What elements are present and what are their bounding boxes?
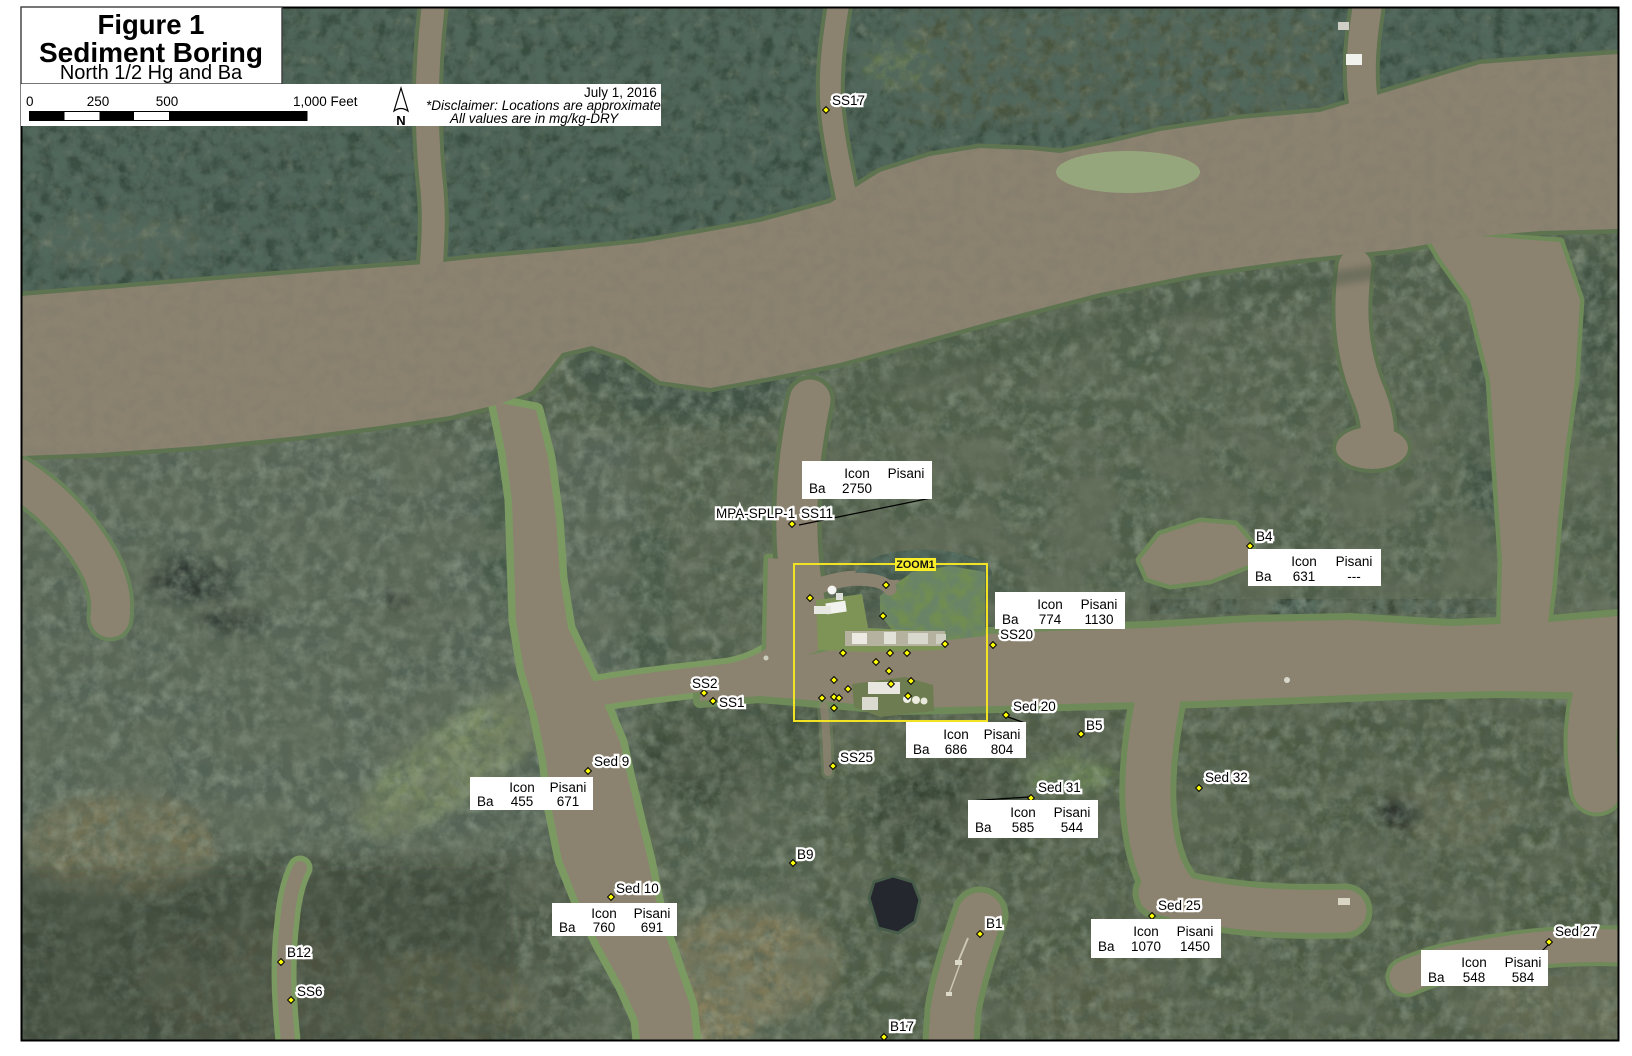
svg-text:1450: 1450 [1180,939,1210,954]
svg-text:250: 250 [87,94,110,109]
svg-text:Sed 25: Sed 25 [1158,898,1201,913]
svg-text:Ba: Ba [559,920,576,935]
svg-text:1130: 1130 [1084,612,1113,627]
svg-text:Sed 31: Sed 31 [1038,780,1081,795]
svg-text:Pisani: Pisani [550,780,587,795]
svg-text:B1: B1 [986,916,1003,931]
svg-text:Pisani: Pisani [1177,924,1214,939]
svg-text:Icon: Icon [1461,955,1487,970]
svg-text:Icon: Icon [1010,805,1036,820]
svg-text:SS1: SS1 [719,695,745,710]
svg-text:Icon: Icon [591,906,617,921]
svg-text:B5: B5 [1086,718,1103,733]
svg-text:Icon: Icon [1037,597,1063,612]
svg-text:Icon: Icon [943,727,969,742]
svg-text:686: 686 [945,742,968,757]
svg-text:MPA-SPLP-1: MPA-SPLP-1 [716,506,795,521]
svg-text:2750: 2750 [842,481,872,496]
svg-text:SS20: SS20 [1000,627,1033,642]
svg-text:Icon: Icon [844,466,870,481]
svg-text:Ba: Ba [1428,970,1445,985]
svg-text:SS2: SS2 [692,676,718,691]
svg-text:SS11: SS11 [801,506,833,521]
svg-text:Sed 32: Sed 32 [1205,770,1248,785]
svg-text:SS6: SS6 [297,984,323,999]
svg-text:Icon: Icon [1133,924,1159,939]
svg-text:Ba: Ba [975,820,992,835]
svg-text:Icon: Icon [509,780,535,795]
svg-text:631: 631 [1293,569,1316,584]
svg-text:North 1/2 Hg and Ba: North 1/2 Hg and Ba [60,62,243,84]
svg-text:SS25: SS25 [840,750,873,765]
svg-text:671: 671 [557,794,580,809]
svg-text:Pisani: Pisani [1054,805,1091,820]
svg-text:544: 544 [1061,820,1084,835]
svg-text:SS17: SS17 [832,93,865,108]
svg-text:Pisani: Pisani [1505,955,1542,970]
svg-text:---: --- [1347,569,1361,584]
svg-text:Pisani: Pisani [634,906,671,921]
svg-text:Ba: Ba [913,742,930,757]
svg-text:Ba: Ba [809,481,826,496]
svg-text:B9: B9 [797,847,814,862]
svg-text:691: 691 [641,920,664,935]
svg-text:804: 804 [991,742,1014,757]
svg-text:Pisani: Pisani [1336,554,1373,569]
svg-text:Sed 20: Sed 20 [1013,699,1056,714]
svg-text:Pisani: Pisani [1081,597,1118,612]
svg-text:1,000 Feet: 1,000 Feet [293,94,358,109]
svg-text:Sed 27: Sed 27 [1555,924,1598,939]
svg-text:585: 585 [1012,820,1035,835]
svg-text:774: 774 [1039,612,1062,627]
svg-text:760: 760 [593,920,616,935]
svg-text:Pisani: Pisani [984,727,1021,742]
svg-text:Pisani: Pisani [888,466,925,481]
svg-text:Sed 9: Sed 9 [594,754,629,769]
svg-text:All values are in mg/kg-DRY: All values are in mg/kg-DRY [449,111,619,126]
svg-text:Ba: Ba [1002,612,1019,627]
svg-text:548: 548 [1463,970,1486,985]
svg-text:0: 0 [26,94,34,109]
svg-text:B17: B17 [890,1019,914,1034]
svg-text:Sed 10: Sed 10 [616,881,659,896]
svg-text:Ba: Ba [1098,939,1115,954]
svg-text:1070: 1070 [1131,939,1161,954]
svg-text:B4: B4 [1256,529,1273,544]
svg-text:Icon: Icon [1291,554,1317,569]
svg-text:Ba: Ba [477,794,494,809]
svg-text:Ba: Ba [1255,569,1272,584]
svg-text:584: 584 [1512,970,1535,985]
svg-text:500: 500 [156,94,179,109]
svg-text:B12: B12 [287,945,311,960]
svg-text:Figure 1: Figure 1 [98,9,205,40]
svg-text:455: 455 [511,794,534,809]
svg-text:ZOOM1: ZOOM1 [896,559,934,571]
svg-text:N: N [396,113,405,128]
